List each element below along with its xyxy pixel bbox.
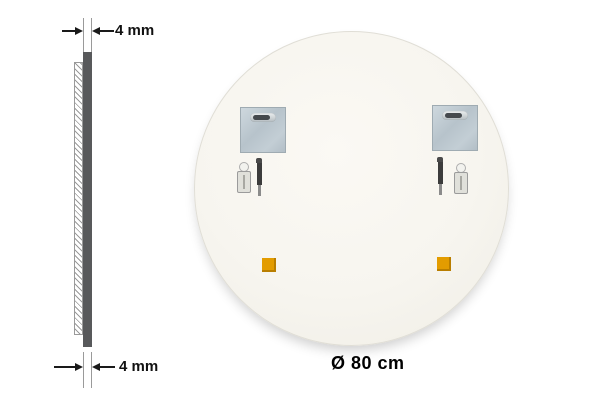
keyhole-slot-icon bbox=[442, 111, 468, 120]
keyhole-slot-icon bbox=[445, 113, 462, 118]
dimension-arrow-icon bbox=[92, 27, 100, 35]
mirror-glass-hatch bbox=[74, 62, 83, 335]
dimension-arrow-icon bbox=[75, 363, 83, 371]
mounting-plate-left bbox=[240, 107, 286, 153]
extension-lines-top bbox=[83, 18, 92, 52]
screw-icon bbox=[257, 163, 262, 185]
diameter-label: Ø 80 cm bbox=[331, 353, 405, 374]
keyhole-slot-icon bbox=[253, 115, 270, 120]
dimension-arrow-icon bbox=[100, 30, 114, 32]
adhesive-pad-icon bbox=[437, 257, 451, 271]
mirror-profile-bar bbox=[83, 52, 92, 347]
product-diagram: 4 mm 4 mm Ø 80 cm bbox=[0, 0, 600, 400]
dimension-arrow-icon bbox=[92, 363, 100, 371]
extension-lines-bottom bbox=[83, 352, 92, 388]
mounting-plate-right bbox=[432, 105, 478, 151]
screw-icon bbox=[439, 184, 442, 195]
dimension-arrow-icon bbox=[75, 27, 83, 35]
adhesive-pad-icon bbox=[262, 258, 276, 272]
wall-anchor-icon bbox=[237, 171, 251, 193]
wall-anchor-icon bbox=[454, 172, 468, 194]
keyhole-slot-icon bbox=[250, 113, 276, 122]
dimension-arrow-icon bbox=[100, 366, 115, 368]
dimension-arrow-icon bbox=[62, 30, 75, 32]
thickness-label-top: 4 mm bbox=[115, 22, 154, 39]
dimension-arrow-icon bbox=[54, 366, 75, 368]
screw-icon bbox=[437, 157, 443, 195]
screw-icon bbox=[258, 185, 261, 196]
thickness-label-bottom: 4 mm bbox=[119, 358, 158, 375]
screw-icon bbox=[438, 162, 443, 184]
screw-icon bbox=[256, 158, 262, 196]
